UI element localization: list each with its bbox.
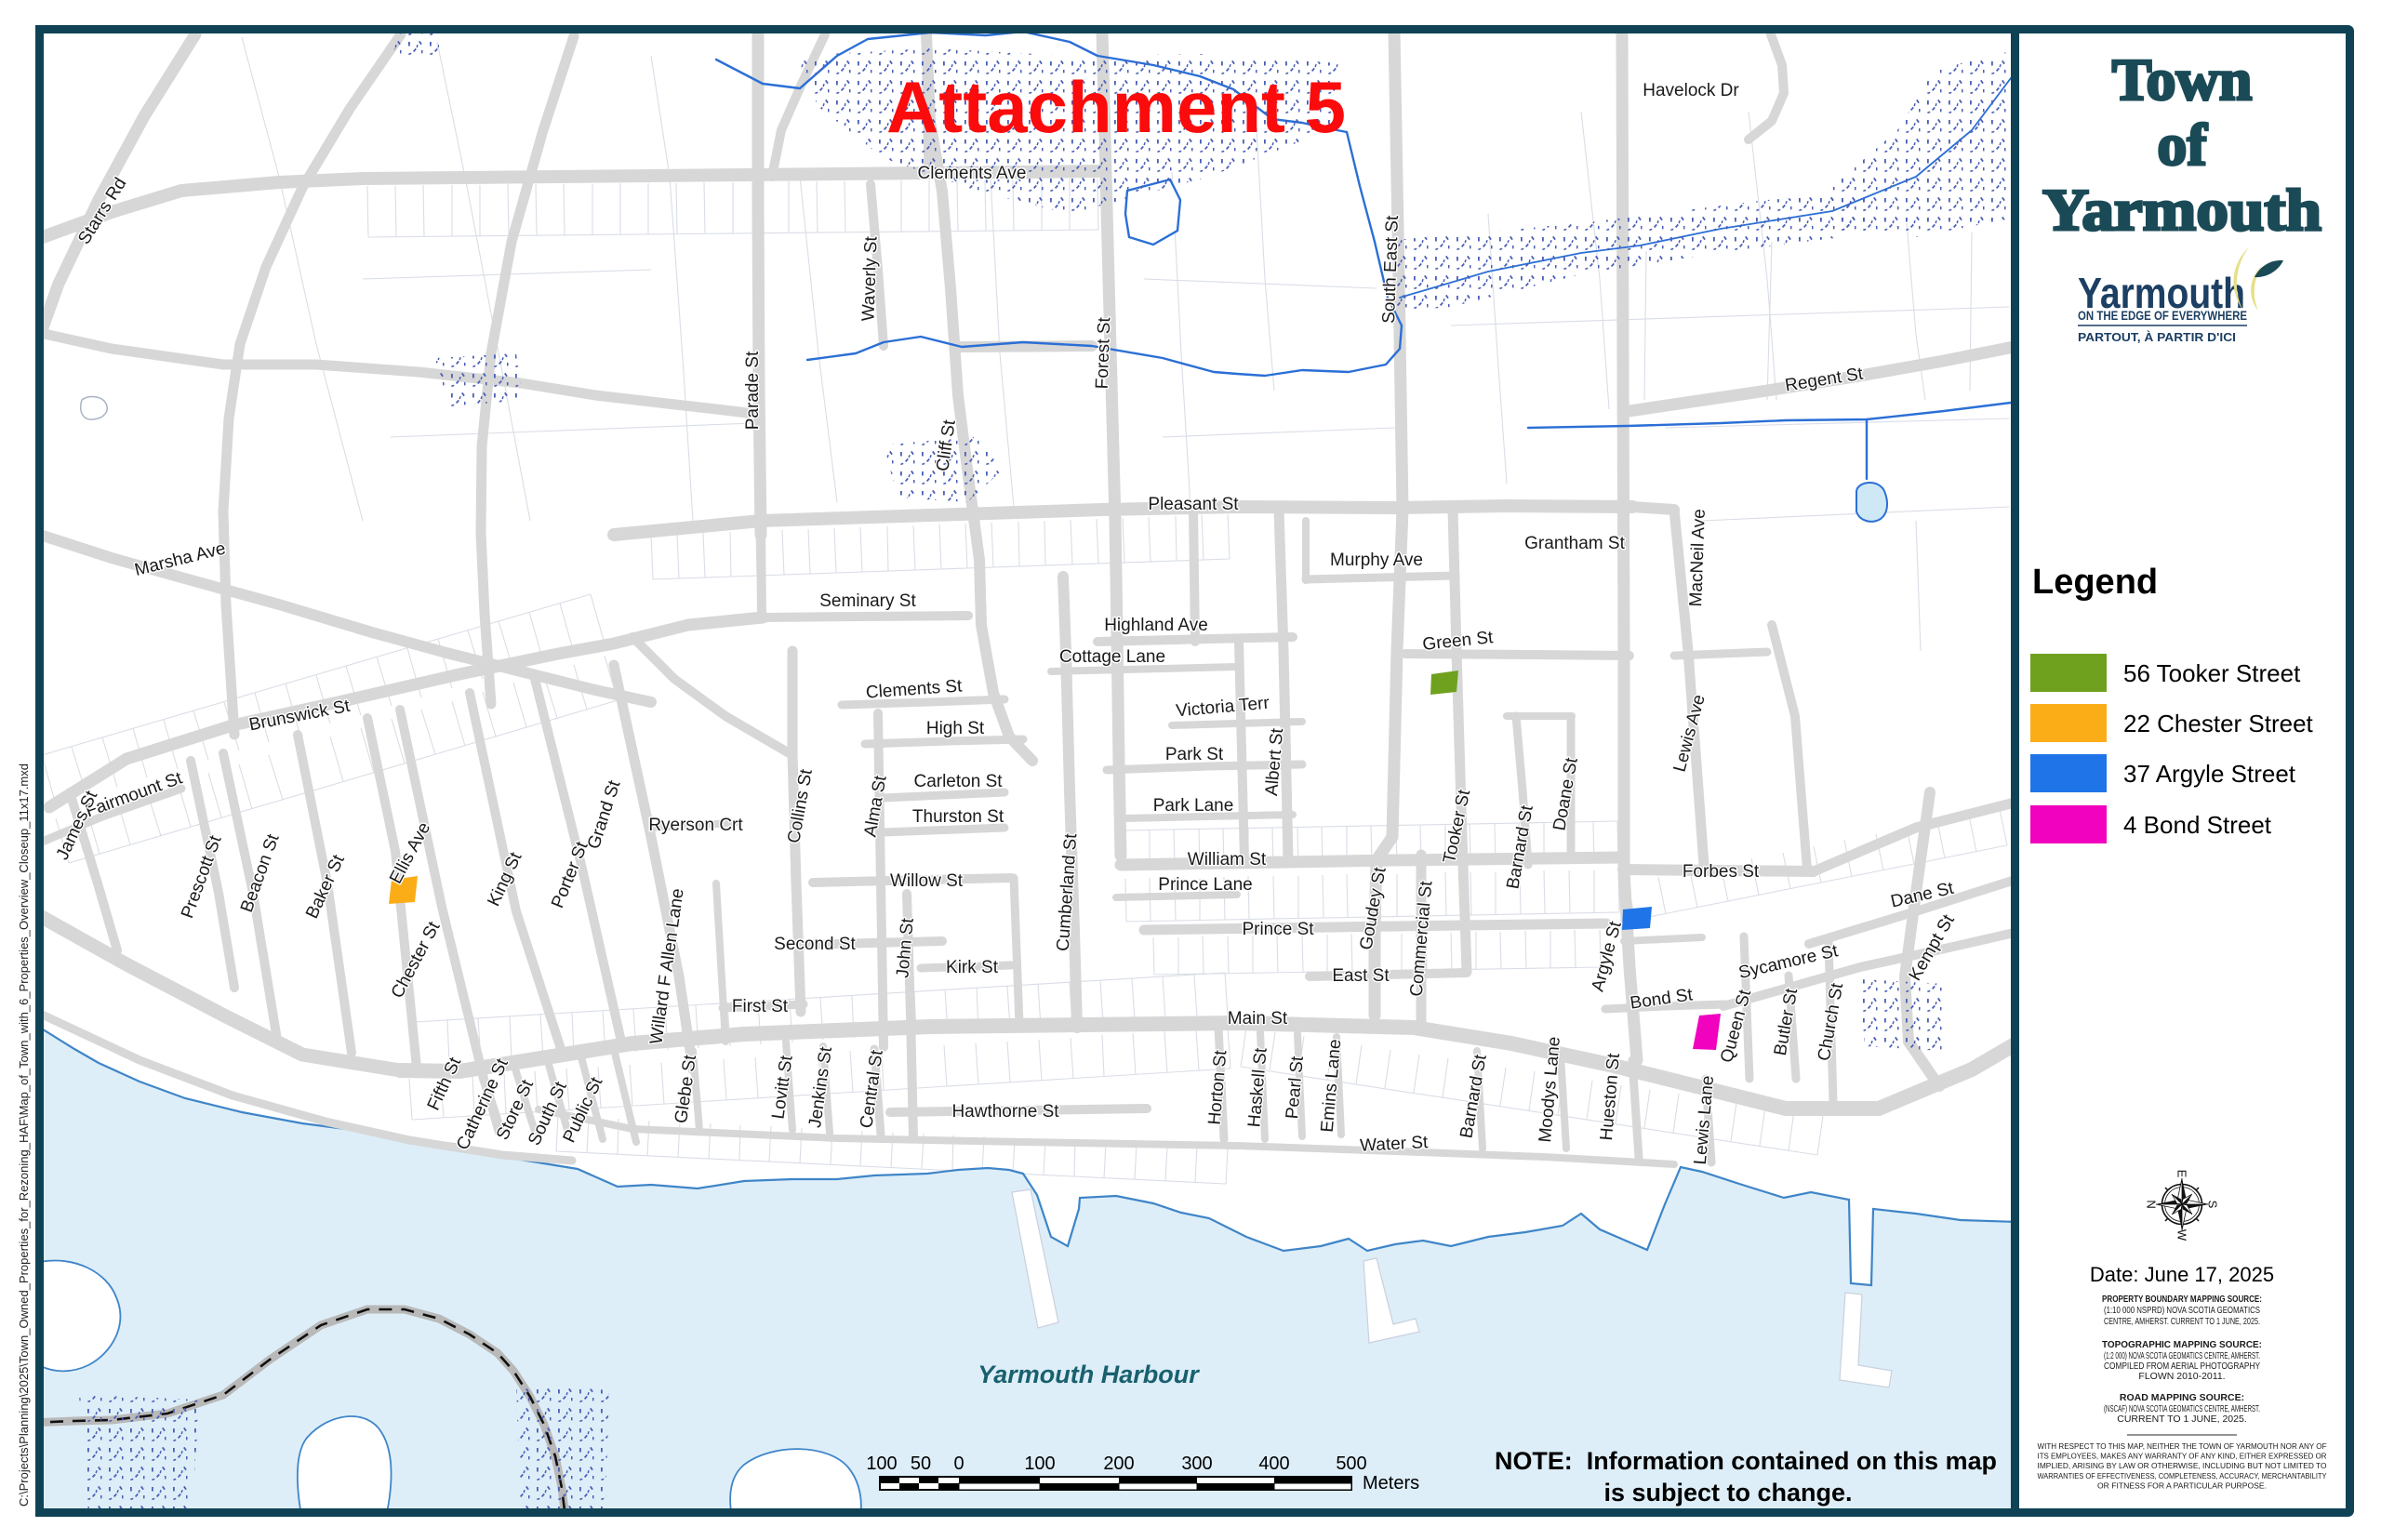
svg-text:Carleton St: Carleton St <box>913 772 1003 791</box>
svg-text:East St: East St <box>1332 966 1390 986</box>
svg-text:is subject to change.: is subject to change. <box>1603 1479 1852 1507</box>
svg-text:Main St: Main St <box>1228 1009 1288 1029</box>
svg-text:56 Tooker Street: 56 Tooker Street <box>2123 659 2301 687</box>
svg-text:Park Lane: Park Lane <box>1153 796 1234 816</box>
svg-text:4 Bond Street: 4 Bond Street <box>2123 811 2272 839</box>
svg-text:Yarmouth Harbour: Yarmouth Harbour <box>978 1361 1200 1388</box>
svg-text:ON THE EDGE OF EVERYWHERE: ON THE EDGE OF EVERYWHERE <box>2078 308 2247 323</box>
svg-text:Kirk St: Kirk St <box>946 958 999 977</box>
svg-text:100: 100 <box>866 1454 897 1474</box>
svg-text:Pleasant St: Pleasant St <box>1148 495 1239 514</box>
svg-text:of: of <box>2157 112 2207 178</box>
svg-text:37 Argyle Street: 37 Argyle Street <box>2123 760 2296 788</box>
svg-text:CURRENT TO 1 JUNE, 2025.: CURRENT TO 1 JUNE, 2025. <box>2117 1414 2246 1425</box>
svg-text:300: 300 <box>1181 1454 1212 1474</box>
svg-text:First St: First St <box>732 997 789 1016</box>
svg-text:Forest St: Forest St <box>1093 316 1115 389</box>
svg-text:MacNeil Ave: MacNeil Ave <box>1686 509 1709 607</box>
svg-text:Seminary St: Seminary St <box>819 591 916 611</box>
svg-text:Yarmouth: Yarmouth <box>2042 177 2321 243</box>
svg-text:Havelock Dr: Havelock Dr <box>1643 81 1739 100</box>
svg-text:ITS EMPLOYEES, MAKES ANY WARRA: ITS EMPLOYEES, MAKES ANY WARRANTY OF ANY… <box>2038 1452 2327 1461</box>
svg-text:South East St: South East St <box>1379 215 1403 325</box>
svg-text:(1:10 000 NSPRD) NOVA SCOTIA G: (1:10 000 NSPRD) NOVA SCOTIA GEOMATICS <box>2104 1305 2260 1316</box>
svg-text:100: 100 <box>1024 1454 1055 1474</box>
svg-text:Forbes St: Forbes St <box>1683 862 1760 882</box>
svg-text:Attachment 5: Attachment 5 <box>886 66 1346 148</box>
svg-text:WARRANTIES OF EFFECTIVENESS, C: WARRANTIES OF EFFECTIVENESS, COMPLETENES… <box>2038 1471 2327 1480</box>
svg-text:High St: High St <box>926 719 985 738</box>
svg-text:Clements Ave: Clements Ave <box>918 164 1027 183</box>
svg-text:S: S <box>2206 1201 2220 1209</box>
svg-text:Grantham St: Grantham St <box>1524 534 1625 553</box>
svg-text:50: 50 <box>911 1454 931 1474</box>
svg-text:NOTE: Information contained o: NOTE: Information contained on this map <box>1495 1447 1997 1475</box>
svg-text:Highland Ave: Highland Ave <box>1104 616 1208 635</box>
svg-text:Prince St: Prince St <box>1242 920 1314 939</box>
svg-text:N: N <box>2145 1200 2159 1208</box>
svg-text:Ryerson Crt: Ryerson Crt <box>648 816 743 835</box>
svg-text:22 Chester Street: 22 Chester Street <box>2123 710 2314 737</box>
svg-text:ROAD MAPPING SOURCE:: ROAD MAPPING SOURCE: <box>2120 1392 2244 1403</box>
svg-text:CENTRE, AMHERST. CURRENT TO 1: CENTRE, AMHERST. CURRENT TO 1 JUNE, 2025… <box>2104 1316 2260 1327</box>
svg-text:Thurston St: Thurston St <box>912 807 1004 827</box>
svg-text:Second St: Second St <box>774 935 856 954</box>
svg-text:Date: June 17, 2025: Date: June 17, 2025 <box>2090 1263 2274 1286</box>
svg-text:IMPLIED, ARISING BY LAW OR OTH: IMPLIED, ARISING BY LAW OR OTHERWISE, IN… <box>2038 1461 2327 1470</box>
svg-text:Willow St: Willow St <box>890 871 964 891</box>
svg-text:WITH RESPECT TO THIS MAP, NEIT: WITH RESPECT TO THIS MAP, NEITHER THE TO… <box>2038 1441 2327 1451</box>
svg-text:Murphy Ave: Murphy Ave <box>1330 551 1423 570</box>
svg-text:200: 200 <box>1103 1454 1134 1474</box>
svg-text:Cottage Lane: Cottage Lane <box>1059 647 1165 667</box>
svg-text:C:\Projects\Planning\2025\Town: C:\Projects\Planning\2025\Town_Owned_Pro… <box>17 763 31 1507</box>
svg-text:PARTOUT, À PARTIR D'ICI: PARTOUT, À PARTIR D'ICI <box>2078 330 2236 344</box>
svg-text:E: E <box>2175 1170 2189 1178</box>
svg-text:W: W <box>2175 1229 2189 1241</box>
svg-text:Meters: Meters <box>1363 1473 1419 1494</box>
svg-text:0: 0 <box>953 1454 964 1474</box>
svg-text:Legend: Legend <box>2032 563 2158 602</box>
svg-text:PROPERTY BOUNDARY MAPPING SOUR: PROPERTY BOUNDARY MAPPING SOURCE: <box>2102 1294 2262 1305</box>
svg-text:Prince Lane: Prince Lane <box>1158 875 1252 895</box>
svg-text:Town: Town <box>2112 46 2253 113</box>
svg-text:Parade St: Parade St <box>743 351 763 430</box>
svg-text:500: 500 <box>1336 1454 1366 1474</box>
svg-text:Waverly St: Waverly St <box>858 235 881 322</box>
svg-text:400: 400 <box>1258 1454 1289 1474</box>
svg-text:FLOWN 2010-2011.: FLOWN 2010-2011. <box>2138 1371 2225 1382</box>
svg-text:TOPOGRAPHIC MAPPING SOURCE:: TOPOGRAPHIC MAPPING SOURCE: <box>2102 1339 2262 1350</box>
svg-text:Park St: Park St <box>1165 745 1224 764</box>
svg-text:Water St: Water St <box>1360 1133 1430 1156</box>
svg-text:William St: William St <box>1188 850 1267 870</box>
svg-text:Hawthorne St: Hawthorne St <box>951 1102 1059 1122</box>
svg-text:OR FITNESS FOR A PARTICULAR PU: OR FITNESS FOR A PARTICULAR PURPOSE. <box>2097 1480 2267 1490</box>
